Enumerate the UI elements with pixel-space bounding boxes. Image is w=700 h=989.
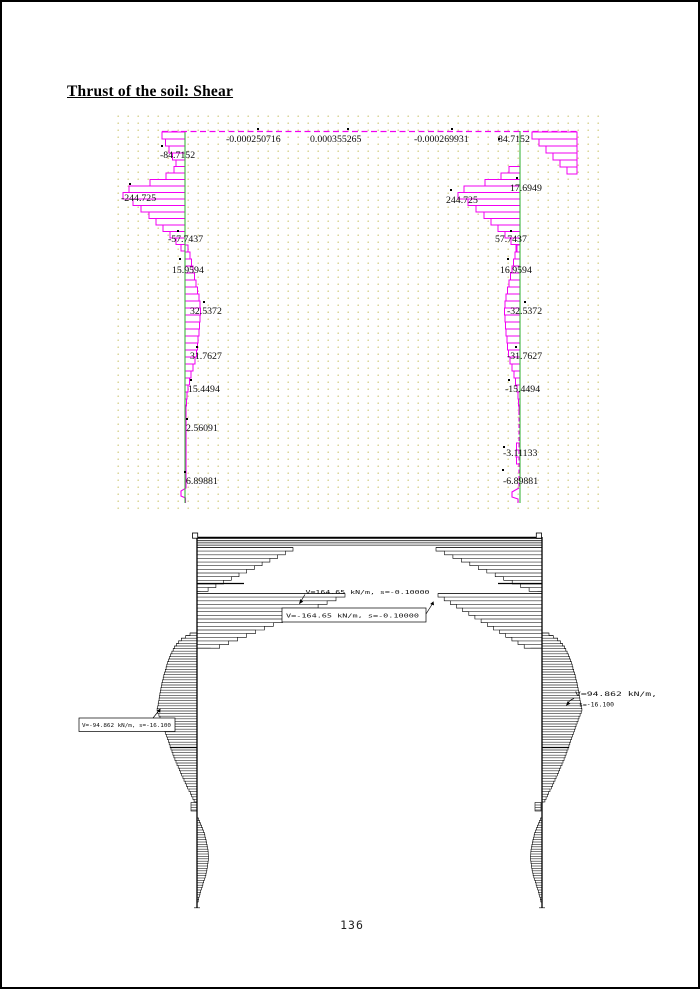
top-left-node-square xyxy=(193,533,198,538)
shear-value-label: -57.7437 xyxy=(168,234,203,245)
callout-left-wall-peak: V=-94.862 kN/m, s=-16.100 xyxy=(79,709,175,732)
shear-value-label: -6.89881 xyxy=(503,476,538,487)
shear-value-label: 0.000355265 xyxy=(310,134,362,145)
shear-value-label: 2.56091 xyxy=(186,423,218,434)
shear-value-label: -3.11133 xyxy=(503,448,537,459)
shear-value-label: 84.7152 xyxy=(498,134,530,145)
callout-text: V=164.65 kN/m, s=-0.10000 xyxy=(306,590,430,596)
shear-value-label: -15.4494 xyxy=(505,384,540,395)
shear-value-label: 244.725 xyxy=(446,195,478,206)
shear-value-label: 31.7627 xyxy=(190,351,222,362)
callout-text: V=-94.862 kN/m, s=-16.100 xyxy=(82,723,171,729)
shear-value-label: 16.9594 xyxy=(500,265,532,276)
callout-text: V=-164.65 kN/m, s=-0.10000 xyxy=(286,614,419,620)
shear-value-label: -84.7152 xyxy=(160,150,195,161)
top-right-node-square xyxy=(536,533,541,538)
shear-value-label: -32.5372 xyxy=(507,306,542,317)
shear-value-label: -0.000269931 xyxy=(414,134,469,145)
shear-value-label: 15.9594 xyxy=(172,265,204,276)
shear-value-label: -244.725 xyxy=(121,193,156,204)
page-number: 136 xyxy=(2,918,700,932)
shear-value-label: 15.4494 xyxy=(188,384,220,395)
callout-text: s=-16.100 xyxy=(579,702,614,709)
shear-value-label: 57.7437 xyxy=(495,234,527,245)
document-page: Thrust of the soil: Shear -0.000250716 0… xyxy=(0,0,700,989)
shear-value-label: 17.6949 xyxy=(510,183,542,194)
callout-text: V=94.862 kN/m, xyxy=(575,691,657,698)
shear-value-label: -31.7627 xyxy=(507,351,542,362)
diagram-canvas: -0.000250716 0.000355265 -0.000269931 84… xyxy=(2,2,700,989)
shear-value-label: 32.5372 xyxy=(190,306,222,317)
shear-value-label: 6.89881 xyxy=(186,476,218,487)
shear-value-label: -0.000250716 xyxy=(226,134,281,145)
